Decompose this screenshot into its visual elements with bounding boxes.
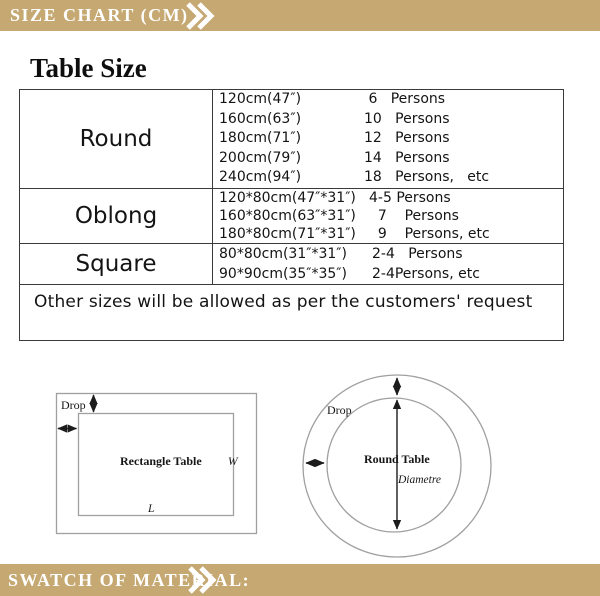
diameter-label: Diametre bbox=[398, 474, 441, 486]
width-label: W bbox=[228, 456, 238, 468]
size-row: 180cm(71″)12 Persons bbox=[219, 129, 563, 149]
size-chart-banner: SIZE CHART (CM) bbox=[0, 0, 600, 31]
persons-value: 7 Persons bbox=[369, 207, 459, 225]
persons-value: 6 Persons bbox=[364, 90, 445, 110]
rect-drop-label: Drop bbox=[61, 399, 86, 411]
table-section-oblong: Oblong120*80cm(47″*31″)4-5 Persons160*80… bbox=[20, 188, 563, 243]
size-row: 120cm(47″) 6 Persons bbox=[219, 90, 563, 110]
persons-value: 10 Persons bbox=[364, 110, 450, 130]
round-drop-label: Drop bbox=[327, 404, 352, 416]
persons-value: 9 Persons, etc bbox=[369, 225, 490, 243]
table-section-round: Round120cm(47″) 6 Persons160cm(63″)10 Pe… bbox=[20, 90, 563, 188]
size-rows: 80*80cm(31″*31″)2-4 Persons90*90cm(35″*3… bbox=[213, 244, 563, 284]
persons-value: 4-5 Persons bbox=[369, 189, 451, 207]
size-chart-banner-title: SIZE CHART (CM) bbox=[10, 5, 189, 26]
size-value: 200cm(79″) bbox=[219, 149, 364, 169]
size-rows: 120*80cm(47″*31″)4-5 Persons160*80cm(63″… bbox=[213, 189, 563, 243]
size-value: 180*80cm(71″*31″) bbox=[219, 225, 369, 243]
size-value: 90*90cm(35″*35″) bbox=[219, 264, 372, 284]
persons-value: 18 Persons, etc bbox=[364, 168, 489, 188]
size-table: Round120cm(47″) 6 Persons160cm(63″)10 Pe… bbox=[19, 89, 564, 341]
rectangle-table-label: Rectangle Table bbox=[120, 455, 202, 467]
size-rows: 120cm(47″) 6 Persons160cm(63″)10 Persons… bbox=[213, 90, 563, 188]
persons-value: 2-4 Persons bbox=[372, 244, 463, 264]
size-row: 160*80cm(63″*31″) 7 Persons bbox=[219, 207, 563, 225]
size-value: 160cm(63″) bbox=[219, 110, 364, 130]
size-value: 160*80cm(63″*31″) bbox=[219, 207, 369, 225]
persons-value: 12 Persons bbox=[364, 129, 450, 149]
round-table-label: Round Table bbox=[364, 453, 430, 465]
size-row: 240cm(94″)18 Persons, etc bbox=[219, 168, 563, 188]
double-chevron-icon bbox=[186, 566, 220, 594]
size-value: 240cm(94″) bbox=[219, 168, 364, 188]
persons-value: 14 Persons bbox=[364, 149, 450, 169]
size-row: 90*90cm(35″*35″)2-4Persons, etc bbox=[219, 264, 563, 284]
round-table-diagram bbox=[300, 372, 500, 564]
table-note-row: Other sizes will be allowed as per the c… bbox=[20, 284, 563, 340]
shape-label: Oblong bbox=[20, 189, 213, 243]
shape-label: Square bbox=[20, 244, 213, 284]
size-row: 120*80cm(47″*31″)4-5 Persons bbox=[219, 189, 563, 207]
size-row: 80*80cm(31″*31″)2-4 Persons bbox=[219, 244, 563, 264]
size-value: 180cm(71″) bbox=[219, 129, 364, 149]
size-row: 200cm(79″)14 Persons bbox=[219, 149, 563, 169]
persons-value: 2-4Persons, etc bbox=[372, 264, 480, 284]
size-value: 120cm(47″) bbox=[219, 90, 364, 110]
size-row: 180*80cm(71″*31″) 9 Persons, etc bbox=[219, 225, 563, 243]
swatch-of-material-banner: SWATCH OF MATERIAL: bbox=[0, 564, 600, 596]
shape-label: Round bbox=[20, 90, 213, 188]
page-title: Table Size bbox=[30, 53, 147, 84]
double-chevron-icon bbox=[184, 2, 218, 30]
table-section-square: Square80*80cm(31″*31″)2-4 Persons90*90cm… bbox=[20, 243, 563, 284]
size-value: 80*80cm(31″*31″) bbox=[219, 244, 372, 264]
length-label: L bbox=[148, 503, 154, 515]
size-value: 120*80cm(47″*31″) bbox=[219, 189, 369, 207]
size-row: 160cm(63″)10 Persons bbox=[219, 110, 563, 130]
